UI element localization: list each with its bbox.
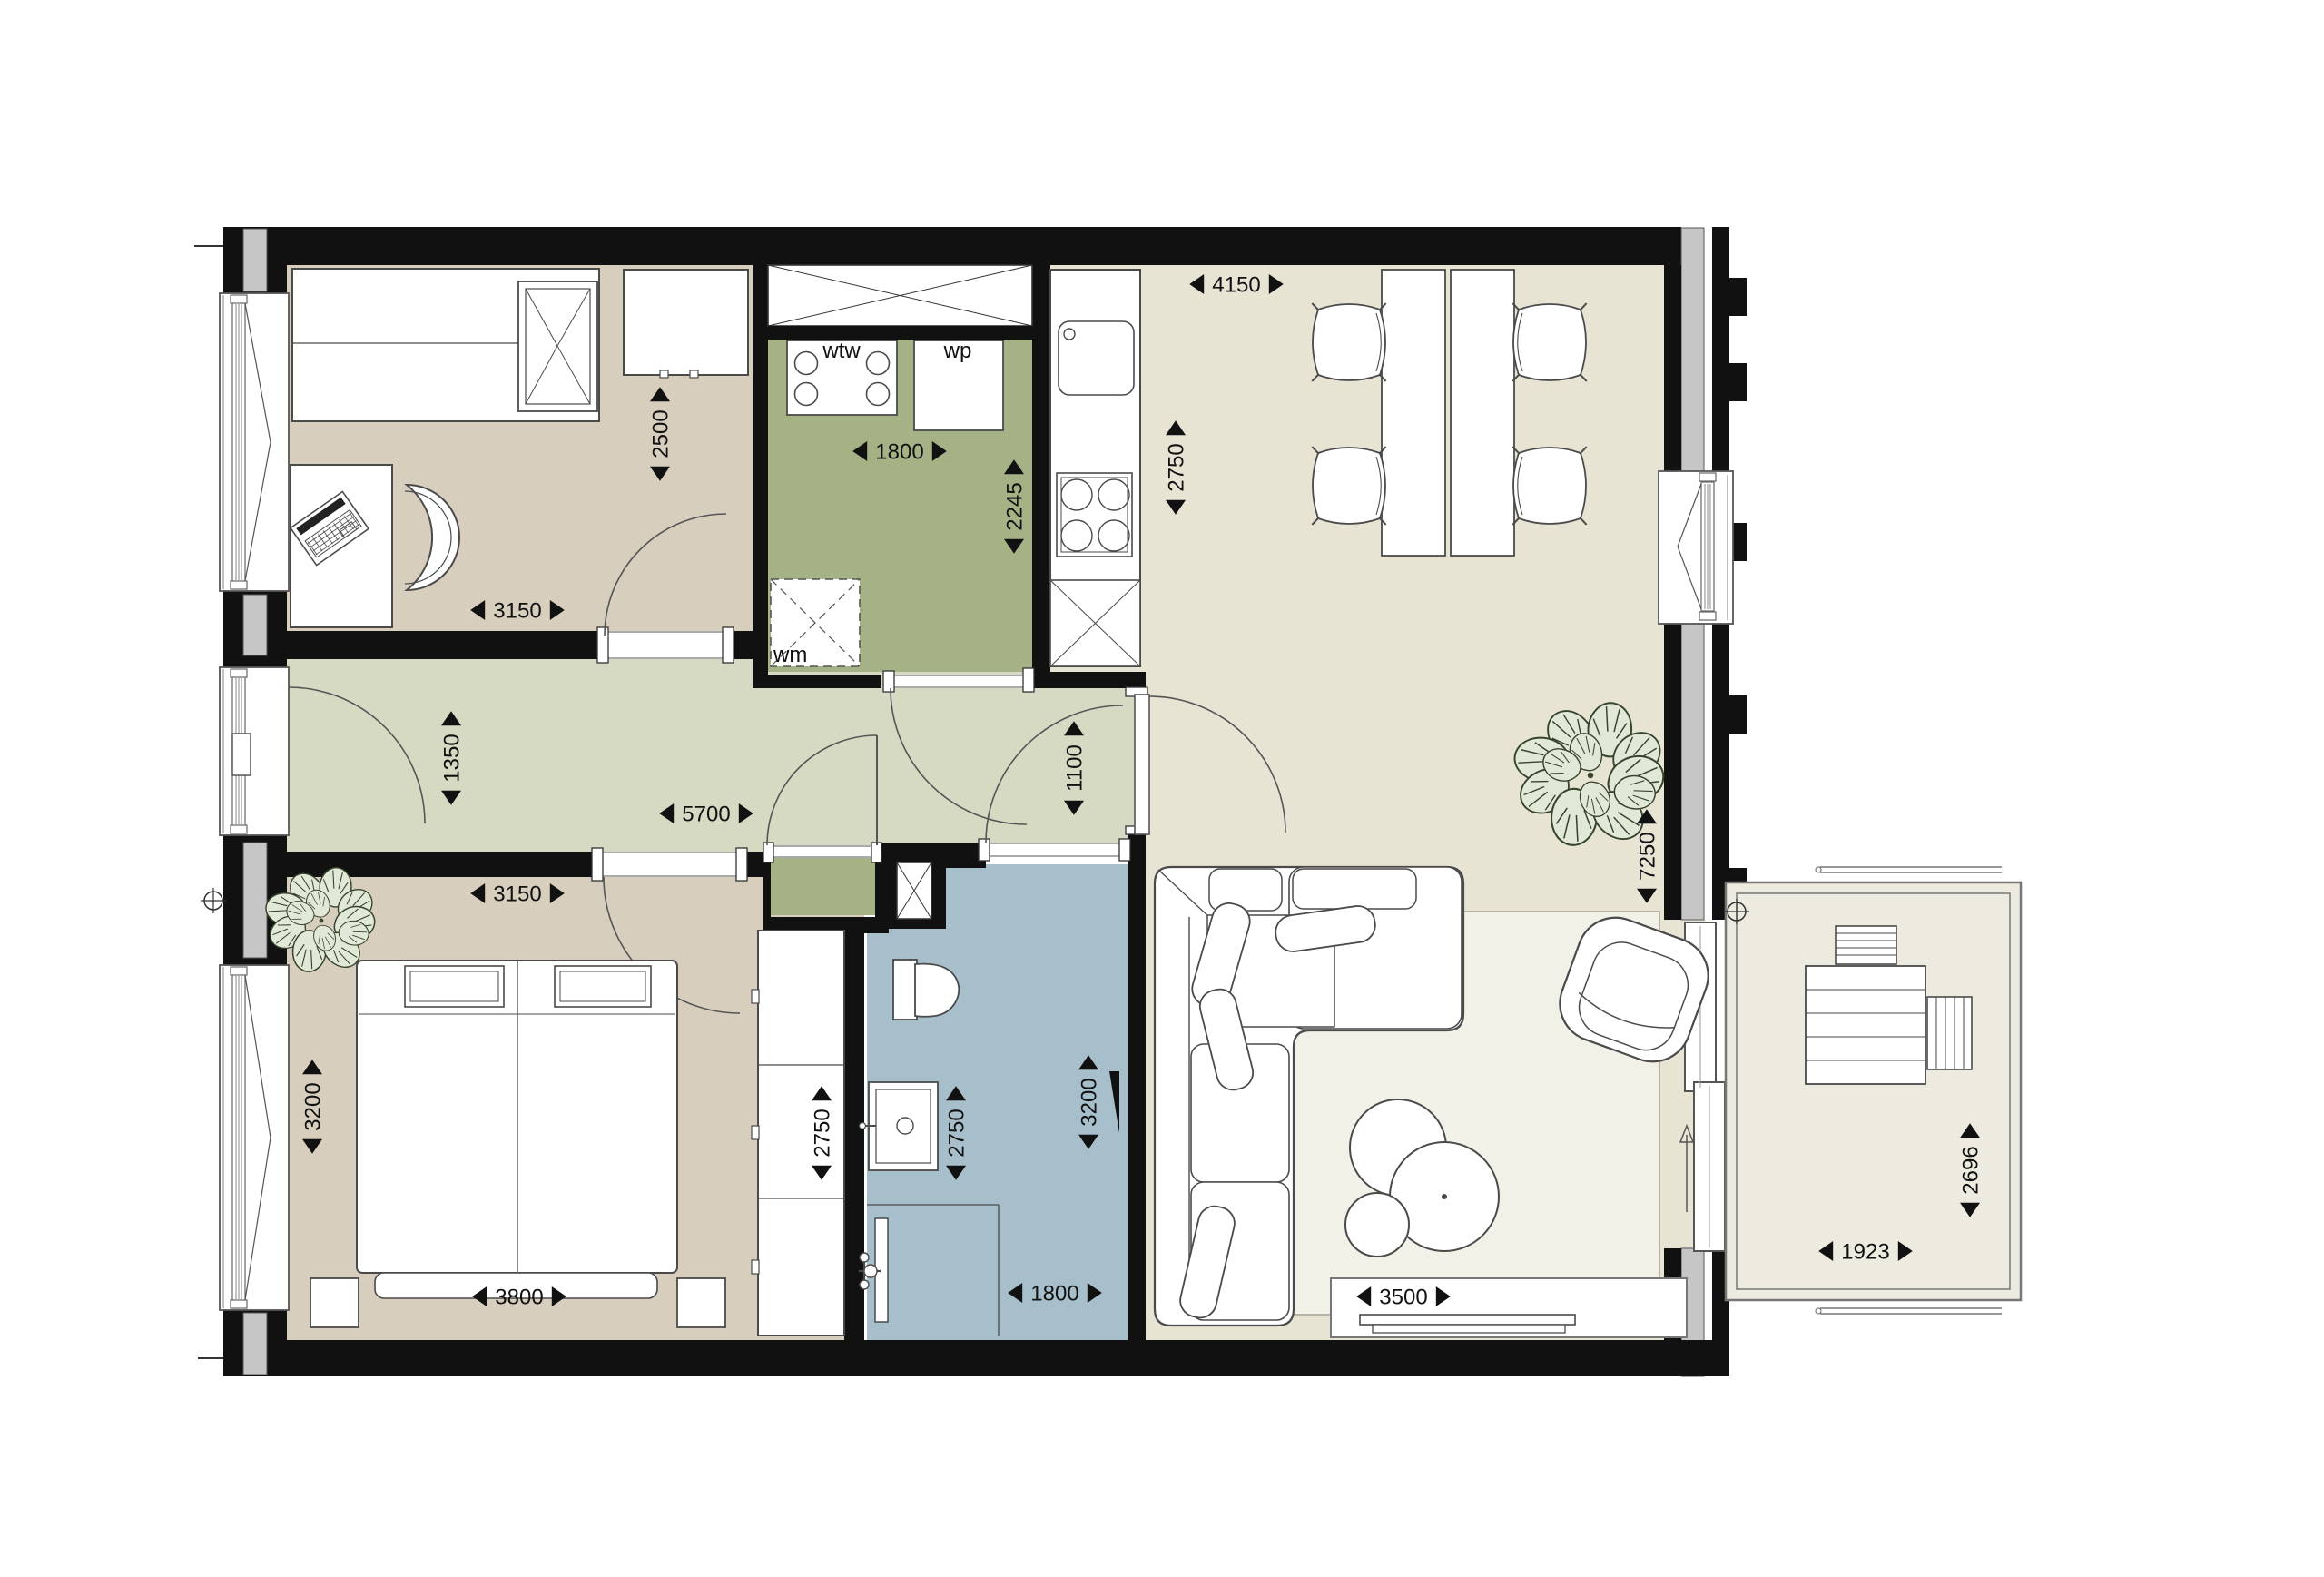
svg-text:1800: 1800 [875,440,923,465]
svg-text:3150: 3150 [493,599,541,624]
svg-text:1350: 1350 [440,734,465,782]
svg-text:2245: 2245 [1003,482,1028,530]
svg-text:1923: 1923 [1841,1240,1889,1265]
svg-text:wtw: wtw [822,339,861,363]
svg-text:1100: 1100 [1063,744,1088,792]
svg-text:wp: wp [943,339,972,363]
svg-text:2750: 2750 [945,1109,970,1157]
svg-text:2500: 2500 [649,409,674,458]
svg-text:3800: 3800 [495,1286,543,1310]
svg-text:7250: 7250 [1636,832,1660,880]
svg-text:3500: 3500 [1379,1286,1427,1310]
svg-text:1800: 1800 [1030,1282,1078,1306]
svg-text:3200: 3200 [301,1082,326,1130]
svg-text:2750: 2750 [1165,443,1189,491]
svg-text:2696: 2696 [1959,1146,1984,1194]
svg-text:3150: 3150 [493,882,541,907]
svg-text:wm: wm [773,643,807,667]
svg-text:5700: 5700 [682,803,730,827]
svg-text:3200: 3200 [1078,1078,1102,1126]
svg-text:2750: 2750 [811,1109,835,1157]
svg-text:4150: 4150 [1212,273,1260,298]
